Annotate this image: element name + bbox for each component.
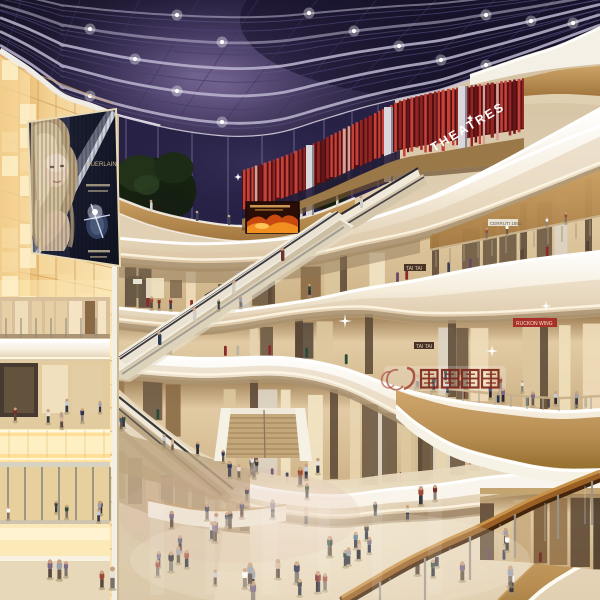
svg-text:GUERLAIN: GUERLAIN <box>86 162 117 168</box>
svg-text:RUCKON WING: RUCKON WING <box>516 321 553 327</box>
svg-text:CERRUTI 1881: CERRUTI 1881 <box>490 221 522 226</box>
svg-text:TAI TAI: TAI TAI <box>406 266 422 272</box>
svg-text:TAI TAI: TAI TAI <box>416 344 432 350</box>
